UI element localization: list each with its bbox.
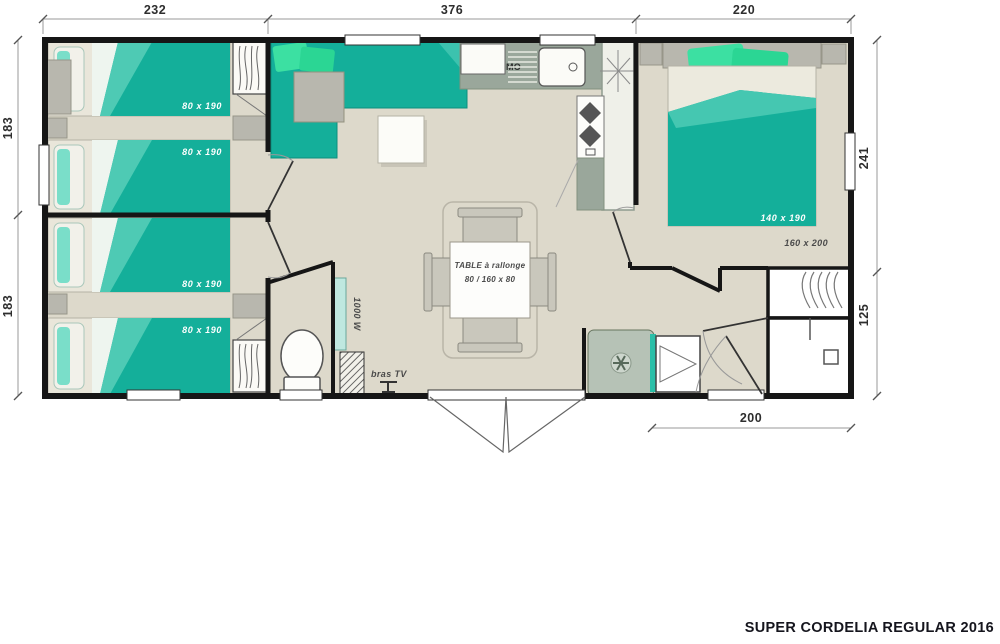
wardrobe-room: [768, 268, 850, 318]
dim-label-top-mid: 376: [441, 3, 463, 17]
window: [39, 145, 49, 205]
dim-label-left-upper: 183: [1, 117, 15, 139]
headboard-block: [640, 43, 662, 65]
bed-size-label: 80 x 190: [182, 147, 222, 157]
hall-wardrobe: [768, 268, 850, 318]
window: [845, 133, 855, 190]
single-bed: 80 x 190: [48, 318, 230, 394]
shelf: [233, 294, 267, 318]
water-heater: [340, 352, 364, 397]
shower-room: [588, 330, 700, 396]
dim-label-right-upper: 241: [857, 147, 871, 169]
radiator: [334, 278, 346, 350]
washbasin: [656, 336, 700, 392]
table-size-label: 80 / 160 x 80: [465, 275, 516, 284]
heater-power-label: 1000 W: [352, 297, 362, 332]
coffee-table: [378, 116, 424, 163]
side-table: [294, 72, 344, 122]
model-title: SUPER CORDELIA REGULAR 2016: [745, 620, 994, 636]
entry-door-opening: [708, 390, 764, 400]
bed-frame-size-label: 160 x 200: [784, 238, 828, 248]
towel: [650, 334, 656, 392]
window: [540, 35, 595, 45]
bathroom: [768, 318, 850, 395]
master-bedroom: 140 x 190 160 x 200: [640, 41, 846, 248]
dim-label-left-lower: 183: [1, 295, 15, 317]
microwave: [461, 44, 505, 74]
bed-size-label: 80 x 190: [182, 279, 222, 289]
single-bed: 80 x 190: [48, 140, 230, 214]
window: [280, 390, 322, 400]
single-bed: 80 x 190: [45, 42, 230, 116]
tv-bracket-label: bras TV: [371, 369, 407, 379]
bed-size-label: 80 x 190: [182, 101, 222, 111]
toilet: [281, 330, 323, 382]
nightstand: [45, 118, 67, 138]
dim-label-top-left: 232: [144, 3, 166, 17]
single-bed: 80 x 190: [48, 218, 230, 292]
drainer-icon: [508, 52, 537, 82]
bed-size-label: 140 x 190: [761, 213, 806, 223]
bed-size-label: 80 x 190: [182, 325, 222, 335]
shelf: [233, 116, 267, 140]
headboard-block: [822, 44, 846, 64]
nightstand: [45, 294, 67, 314]
sofa-pillow: [299, 46, 335, 73]
sink: [539, 48, 585, 86]
table-label: TABLE à rallonge: [455, 261, 526, 270]
dim-label-right-lower: 125: [857, 304, 871, 326]
floorplan-page: 80 x 190 80 x 190: [0, 0, 1000, 644]
bay-door-swing: [430, 397, 585, 452]
dim-label-top-right: 220: [733, 3, 755, 17]
window: [127, 390, 180, 400]
kitchen-cabinet: [577, 158, 604, 210]
window: [345, 35, 420, 45]
dim-label-bottom: 200: [740, 411, 762, 425]
floorplan-drawing: 80 x 190 80 x 190: [0, 0, 1000, 644]
